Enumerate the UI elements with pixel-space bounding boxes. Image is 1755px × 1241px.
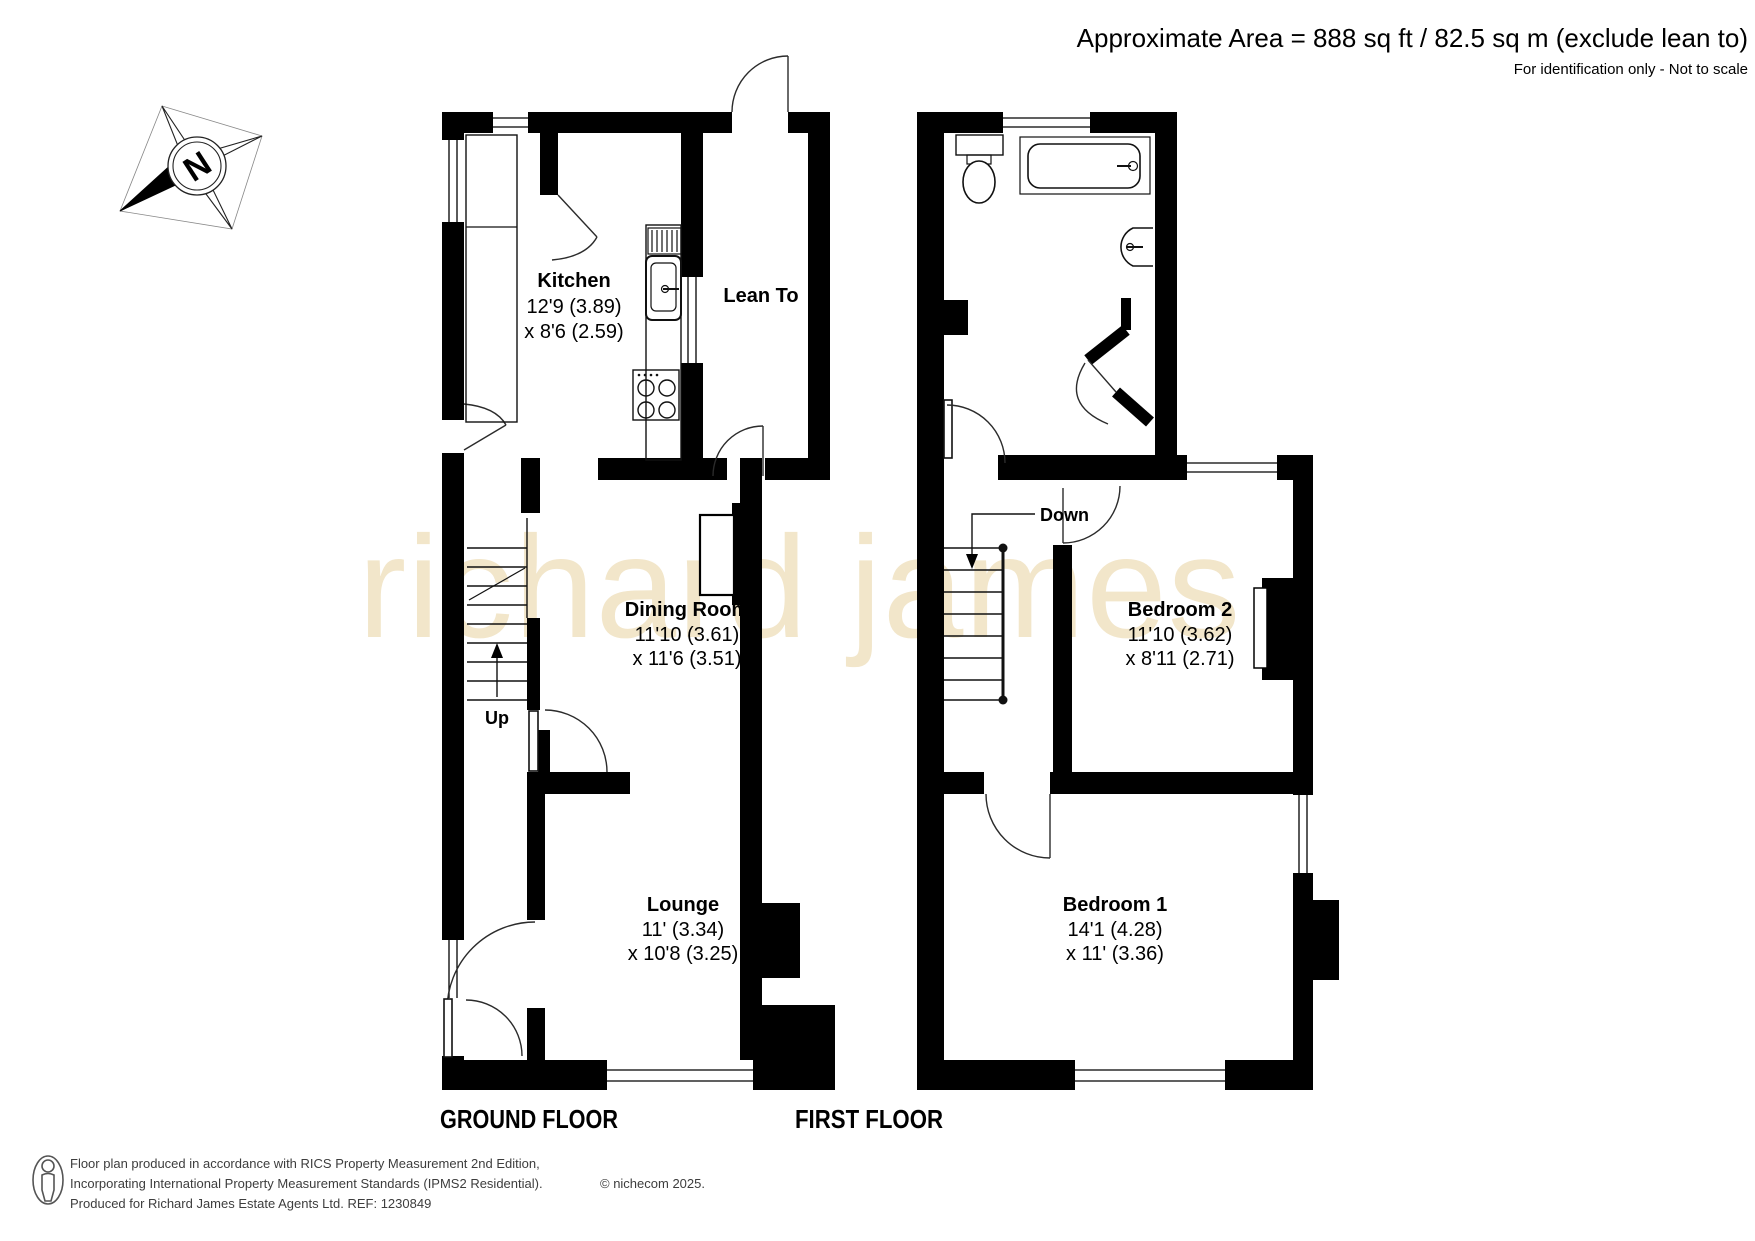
first-floor-title: FIRST FLOOR <box>795 1104 943 1134</box>
bathtub <box>1020 137 1150 194</box>
bedroom1-dim-1: 14'1 (4.28) <box>1068 919 1163 941</box>
lounge-dim-1: 11' (3.34) <box>642 919 724 941</box>
kitchen-dim-2: x 8'6 (2.59) <box>524 321 623 343</box>
header: Approximate Area = 888 sq ft / 82.5 sq m… <box>1077 23 1748 78</box>
toilet <box>956 135 1003 203</box>
bedroom2-dim-2: x 8'11 (2.71) <box>1125 648 1234 670</box>
first-floor-labels: Bedroom 2 11'10 (3.62) x 8'11 (2.71) Bed… <box>795 599 1235 1134</box>
footer-line-1: Floor plan produced in accordance with R… <box>70 1156 540 1171</box>
footer-line-3: Produced for Richard James Estate Agents… <box>70 1196 431 1211</box>
lounge-chimney <box>762 903 800 978</box>
ground-floor-title: GROUND FLOOR <box>440 1104 618 1134</box>
kitchen-label: Kitchen <box>537 270 610 292</box>
identification-note-text: For identification only - Not to scale <box>1514 61 1748 78</box>
kitchen-hob <box>633 370 679 420</box>
bedroom2-dim-1: 11'10 (3.62) <box>1128 624 1233 646</box>
wash-basin <box>1121 228 1153 266</box>
bedroom1-label: Bedroom 1 <box>1063 894 1167 916</box>
nichecom-person-logo <box>33 1156 63 1204</box>
dining-room-dim-1: 11'10 (3.61) <box>635 624 740 646</box>
bedroom2-label: Bedroom 2 <box>1128 599 1232 621</box>
down-label: Down <box>1040 505 1089 525</box>
kitchen-dim-1: 12'9 (3.89) <box>527 296 622 318</box>
bedroom2-chimney-breast <box>1254 578 1293 680</box>
lean-to-label: Lean To <box>723 285 798 307</box>
dining-chimney-breast <box>700 503 762 605</box>
lounge-label: Lounge <box>647 894 719 916</box>
footer-line-2: Incorporating International Property Mea… <box>70 1176 543 1191</box>
up-label: Up <box>485 708 509 728</box>
floorplan-page: richard james Approximate Area = 888 sq … <box>0 0 1755 1241</box>
bedroom1-dim-2: x 11' (3.36) <box>1066 943 1164 965</box>
dining-room-dim-2: x 11'6 (3.51) <box>632 648 741 670</box>
bedroom1-chimney <box>1313 900 1339 980</box>
floorplan-canvas: richard james Approximate Area = 888 sq … <box>0 0 1755 1241</box>
footer: Floor plan produced in accordance with R… <box>33 1156 705 1211</box>
kitchen-sink <box>646 228 681 320</box>
approximate-area-text: Approximate Area = 888 sq ft / 82.5 sq m… <box>1077 23 1748 53</box>
footer-copyright: © nichecom 2025. <box>600 1176 705 1191</box>
dining-room-label: Dining Room <box>625 599 749 621</box>
lounge-dim-2: x 10'8 (3.25) <box>628 943 739 965</box>
compass-rose: N <box>120 106 262 229</box>
